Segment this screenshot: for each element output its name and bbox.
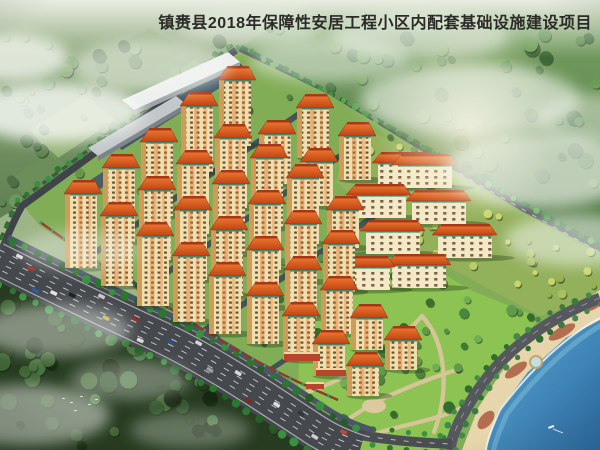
project-title: 镇赉县2018年保障性安居工程小区内配套基础设施建设项目: [158, 9, 592, 33]
architectural-rendering: 镇赉县2018年保障性安居工程小区内配套基础设施建设项目: [0, 0, 600, 450]
rendering-scene: [0, 0, 600, 450]
vignette: [0, 0, 600, 450]
layer-vignette: [0, 0, 600, 450]
